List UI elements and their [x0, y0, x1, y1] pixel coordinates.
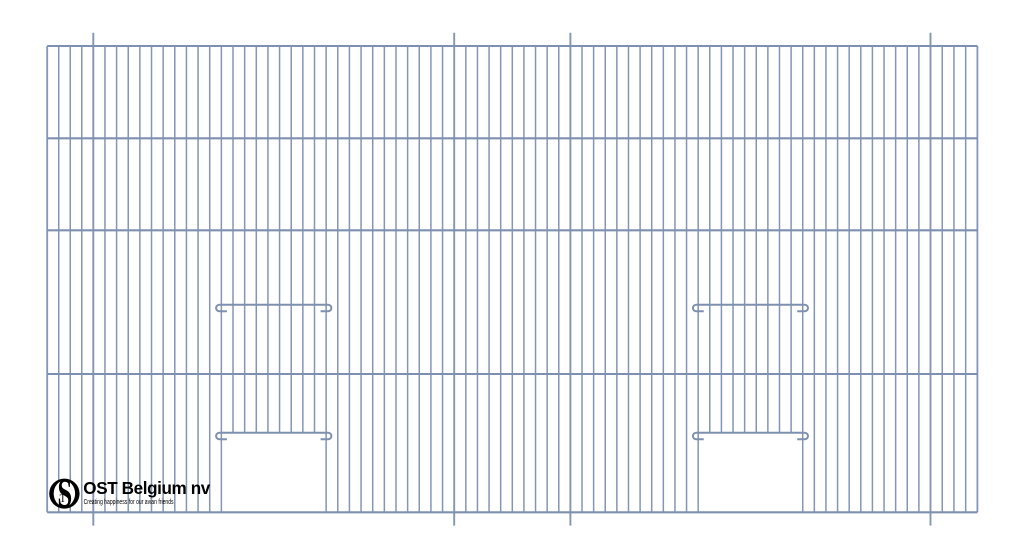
svg-text:OST Belgium nv: OST Belgium nv [83, 479, 210, 498]
svg-text:T: T [60, 492, 67, 505]
svg-text:Creating happiness for our avi: Creating happiness for our avian friends [84, 499, 174, 506]
